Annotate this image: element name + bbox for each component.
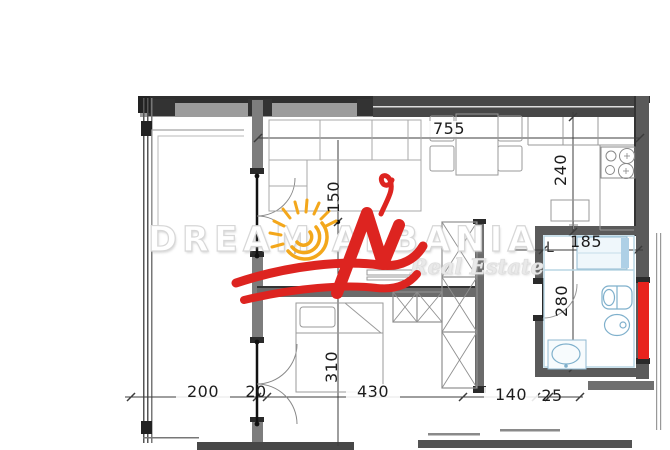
dim-150: 150 [326, 175, 342, 219]
dim-25: 25 [537, 388, 567, 404]
dim-430: 430 [346, 384, 400, 400]
label-laundry: L [546, 240, 554, 256]
dim-20: 20 [241, 384, 271, 400]
dim-240: 240 [553, 148, 569, 192]
dim-310: 310 [324, 345, 340, 389]
dim-140: 140 [484, 387, 538, 403]
dim-280: 280 [554, 279, 570, 323]
floor-plan-page: DREAM ALBANIA Real Estate 755 240 185 L [0, 0, 670, 450]
dim-755: 755 [422, 121, 476, 137]
dim-200: 200 [176, 384, 230, 400]
dim-185: 185 [562, 234, 610, 250]
